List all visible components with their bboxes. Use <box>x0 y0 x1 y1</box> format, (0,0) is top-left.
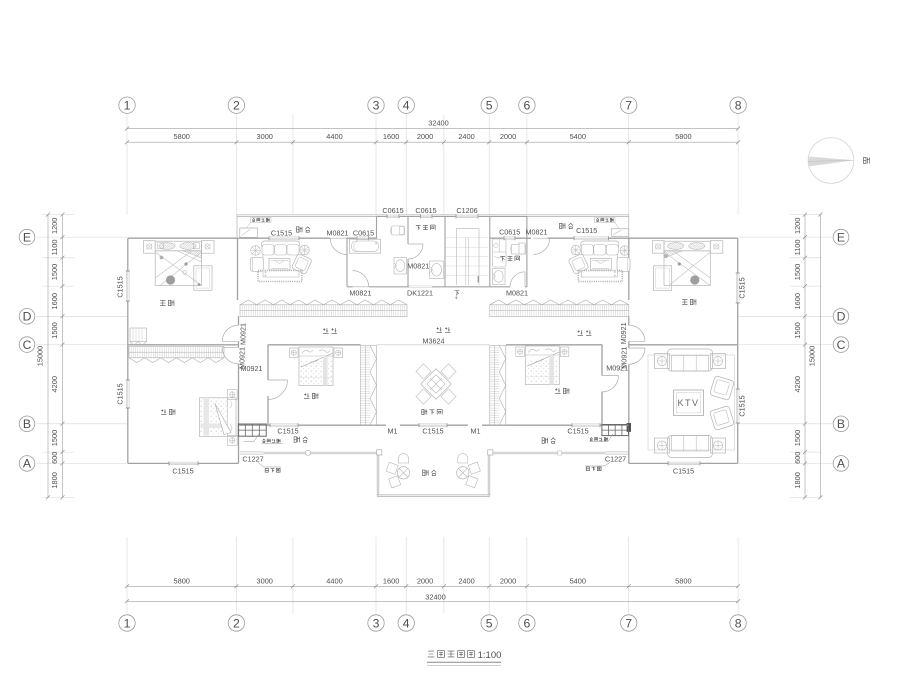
svg-text:C1515: C1515 <box>738 395 747 416</box>
svg-text:M0821: M0821 <box>526 228 548 237</box>
svg-text:M0921: M0921 <box>241 364 263 373</box>
svg-text:C: C <box>837 338 846 352</box>
svg-text:1500: 1500 <box>793 322 802 338</box>
svg-text:M0921: M0921 <box>238 323 247 345</box>
svg-text:1500: 1500 <box>50 430 59 446</box>
svg-text:1600: 1600 <box>50 293 59 309</box>
svg-text:B: B <box>837 417 845 431</box>
svg-text:1800: 1800 <box>793 472 802 488</box>
svg-text:2400: 2400 <box>458 576 474 585</box>
svg-text:A: A <box>23 457 32 471</box>
svg-text:5800: 5800 <box>675 576 691 585</box>
svg-text:C1515: C1515 <box>673 466 694 475</box>
svg-text:C0615: C0615 <box>382 206 403 215</box>
svg-text:8: 8 <box>735 99 742 113</box>
svg-text:1100: 1100 <box>793 239 802 255</box>
svg-text:4400: 4400 <box>326 132 342 141</box>
svg-text:M3624: M3624 <box>423 337 445 346</box>
svg-text:1:100: 1:100 <box>478 650 502 661</box>
svg-text:3: 3 <box>373 99 380 113</box>
svg-text:4400: 4400 <box>326 576 342 585</box>
svg-text:600: 600 <box>793 452 802 464</box>
svg-text:C1227: C1227 <box>605 454 626 463</box>
svg-text:E: E <box>837 230 845 244</box>
svg-text:C0615: C0615 <box>415 206 436 215</box>
svg-text:8: 8 <box>735 616 742 630</box>
svg-text:A: A <box>837 457 846 471</box>
svg-text:1600: 1600 <box>793 293 802 309</box>
svg-text:C1227: C1227 <box>242 455 263 464</box>
svg-text:C: C <box>23 338 32 352</box>
svg-text:1500: 1500 <box>50 264 59 280</box>
svg-text:2000: 2000 <box>417 132 433 141</box>
svg-text:1: 1 <box>124 616 131 630</box>
svg-text:M1: M1 <box>471 427 481 436</box>
svg-text:C1515: C1515 <box>422 427 443 436</box>
svg-text:2400: 2400 <box>458 132 474 141</box>
svg-text:32400: 32400 <box>428 118 449 127</box>
svg-text:2000: 2000 <box>500 132 516 141</box>
svg-text:1800: 1800 <box>50 472 59 488</box>
svg-text:DK1221: DK1221 <box>407 289 433 298</box>
svg-text:C1515: C1515 <box>172 467 193 476</box>
svg-text:D: D <box>23 310 32 324</box>
svg-text:7: 7 <box>625 616 632 630</box>
svg-text:5400: 5400 <box>570 576 586 585</box>
svg-text:2: 2 <box>233 99 240 113</box>
svg-text:C1515: C1515 <box>116 276 125 297</box>
svg-text:7: 7 <box>625 99 632 113</box>
svg-text:1600: 1600 <box>383 132 399 141</box>
svg-text:3: 3 <box>373 616 380 630</box>
svg-text:C1206: C1206 <box>456 206 477 215</box>
svg-text:1500: 1500 <box>793 264 802 280</box>
svg-text:1200: 1200 <box>793 218 802 234</box>
svg-text:C0615: C0615 <box>353 229 374 238</box>
svg-text:M0821: M0821 <box>349 289 371 298</box>
svg-text:1100: 1100 <box>50 239 59 255</box>
svg-text:6: 6 <box>524 99 531 113</box>
svg-text:5: 5 <box>486 99 493 113</box>
svg-text:M0921: M0921 <box>606 363 628 372</box>
svg-text:M0821: M0821 <box>407 261 429 270</box>
svg-text:M0821: M0821 <box>327 229 349 238</box>
svg-text:M1: M1 <box>388 427 398 436</box>
svg-text:B: B <box>23 417 31 431</box>
svg-text:1200: 1200 <box>50 218 59 234</box>
svg-text:15000: 15000 <box>808 346 817 367</box>
svg-text:5800: 5800 <box>675 132 691 141</box>
svg-text:2000: 2000 <box>500 576 516 585</box>
svg-text:M0921: M0921 <box>619 322 628 344</box>
svg-text:C1515: C1515 <box>116 383 125 404</box>
svg-text:4200: 4200 <box>50 376 59 392</box>
svg-text:2: 2 <box>233 616 240 630</box>
svg-text:5400: 5400 <box>570 132 586 141</box>
svg-text:6: 6 <box>524 616 531 630</box>
svg-text:5: 5 <box>486 616 493 630</box>
svg-text:D: D <box>837 310 846 324</box>
svg-text:1500: 1500 <box>793 430 802 446</box>
svg-text:C1515: C1515 <box>576 226 597 235</box>
svg-text:15000: 15000 <box>35 346 44 367</box>
svg-text:2000: 2000 <box>417 576 433 585</box>
svg-text:C1515: C1515 <box>277 426 298 435</box>
svg-text:1600: 1600 <box>383 576 399 585</box>
svg-text:1: 1 <box>124 99 131 113</box>
svg-text:5800: 5800 <box>173 132 189 141</box>
svg-text:C1515: C1515 <box>271 229 292 238</box>
svg-text:4: 4 <box>403 616 410 630</box>
svg-text:3000: 3000 <box>256 576 272 585</box>
svg-text:E: E <box>23 230 31 244</box>
svg-text:5800: 5800 <box>173 576 189 585</box>
svg-text:C1515: C1515 <box>567 427 588 436</box>
svg-text:1500: 1500 <box>50 322 59 338</box>
svg-text:C0615: C0615 <box>499 228 520 237</box>
svg-text:3000: 3000 <box>256 132 272 141</box>
svg-text:M0821: M0821 <box>506 289 528 298</box>
svg-text:4200: 4200 <box>793 376 802 392</box>
svg-text:C1515: C1515 <box>738 277 747 298</box>
svg-text:32400: 32400 <box>425 592 446 601</box>
svg-text:KTV: KTV <box>677 398 699 408</box>
svg-text:4: 4 <box>403 99 410 113</box>
svg-text:600: 600 <box>50 452 59 464</box>
